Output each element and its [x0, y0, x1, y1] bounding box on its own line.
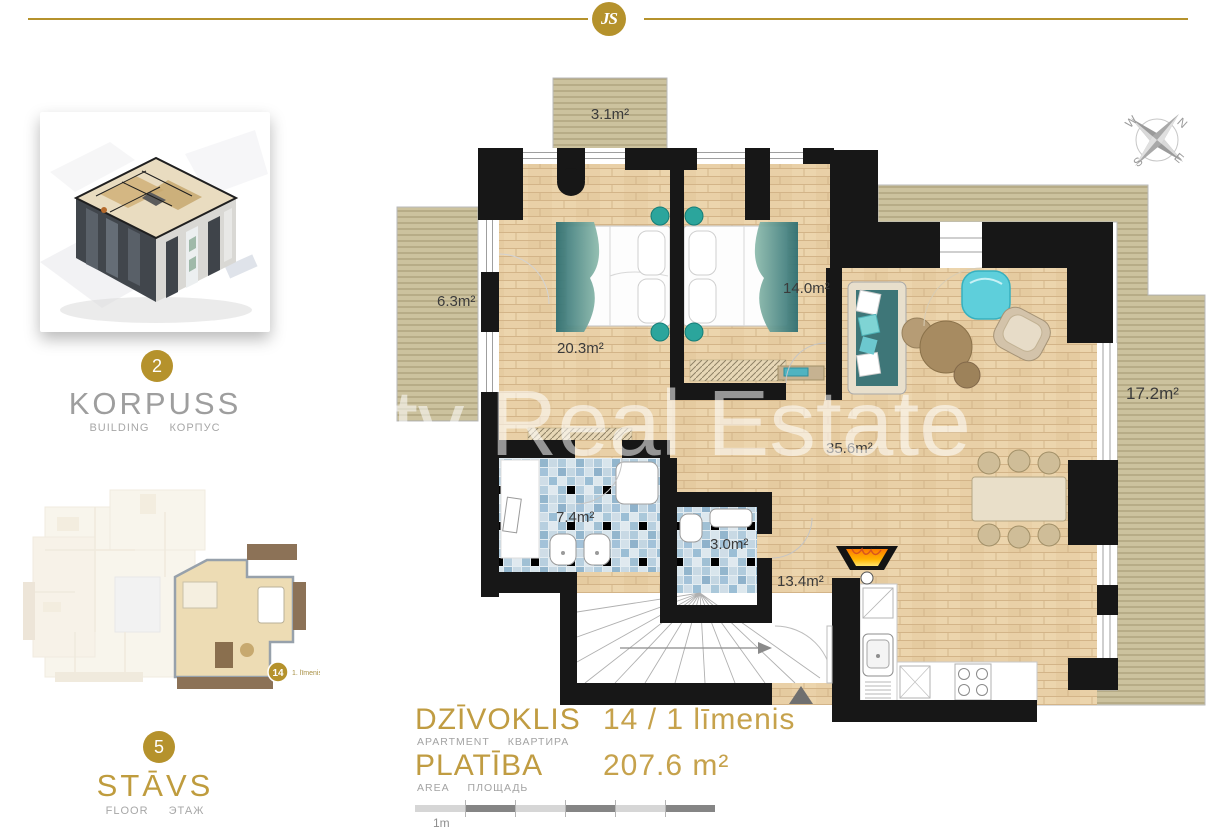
- label-bedroom1: 20.3m²: [557, 340, 604, 357]
- floor-subtitle-ru: ЭТАЖ: [169, 805, 205, 817]
- area-sub-en: AREA: [417, 782, 450, 794]
- wall-door-knob: [557, 168, 585, 196]
- building-subtitle-en: BUILDING: [89, 422, 149, 434]
- bed-2: [684, 222, 798, 332]
- outside-gap: [499, 593, 560, 705]
- building-subtitle-ru: КОРПУС: [170, 422, 221, 434]
- scale-tick: [665, 800, 666, 817]
- floorplan-page: JS: [0, 0, 1216, 837]
- label-bathroom: 7.4m²: [556, 509, 594, 526]
- scale-segment: [415, 805, 465, 812]
- scale-unit-label: 1m: [433, 816, 450, 830]
- dining-set: [972, 450, 1066, 548]
- building-3d-image: [40, 112, 270, 332]
- area-sublabels: AREA ПЛОЩАДЬ: [417, 782, 542, 794]
- area-label: PLATĪBA: [415, 749, 543, 783]
- apartment-sublabels: APARTMENT КВАРТИРА: [417, 736, 583, 748]
- area-sub-ru: ПЛОЩАДЬ: [468, 782, 529, 794]
- minimap-unit-badge: 14: [272, 668, 284, 679]
- header-rule-right: [644, 18, 1188, 20]
- bedroom2-door-gap: [786, 383, 826, 400]
- label-living: 35.6m²: [826, 440, 873, 457]
- scale-tick: [465, 800, 466, 817]
- scale-segment: [665, 805, 715, 812]
- apartment-sub-ru: КВАРТИРА: [508, 736, 570, 748]
- building-subtitle: BUILDING КОРПУС: [20, 422, 290, 434]
- label-balcony-top: 3.1m²: [591, 106, 629, 123]
- floor-title: STĀVS: [20, 768, 290, 804]
- label-balcony-left: 6.3m²: [437, 293, 475, 310]
- scale-tick: [515, 800, 516, 817]
- building-number-badge: 2: [141, 350, 173, 382]
- floor-subtitle: FLOOR ЭТАЖ: [20, 805, 290, 817]
- apartment-sub-en: APARTMENT: [417, 736, 490, 748]
- brand-logo[interactable]: JS: [592, 2, 626, 36]
- scale-tick: [565, 800, 566, 817]
- scale-segment: [615, 805, 665, 812]
- apartment-value: 14 / 1 līmenis: [603, 703, 795, 737]
- scale-segment: [515, 805, 565, 812]
- floor-subtitle-en: FLOOR: [106, 805, 149, 817]
- balcony-left: [397, 207, 478, 421]
- label-hallway: 13.4m²: [777, 573, 824, 590]
- building-thumbnail-card[interactable]: [40, 112, 270, 332]
- bed-1: [556, 222, 670, 332]
- area-value: 207.6 m²: [603, 749, 729, 783]
- apartment-label: DZĪVOKLIS: [415, 703, 581, 737]
- scale-segment: [465, 805, 515, 812]
- floor-minimap[interactable]: 14 1. līmenis: [15, 482, 320, 697]
- label-wc: 3.0m²: [710, 536, 748, 553]
- wardrobe-2: [690, 360, 786, 381]
- minimap-unit-note: 1. līmenis: [292, 670, 320, 677]
- sofa: [848, 282, 906, 394]
- scale-segment: [565, 805, 615, 812]
- floor-number-badge: 5: [143, 731, 175, 763]
- header-rule-left: [28, 18, 588, 20]
- pouf: [962, 271, 1010, 319]
- floorplan-image: 3.1m² 6.3m² 20.3m² 14.0m² 17.2m² 35.6m² …: [390, 50, 1216, 740]
- bedroom1-door-gap: [575, 440, 622, 458]
- label-bedroom2: 14.0m²: [783, 280, 830, 297]
- building-title: KORPUSS: [20, 386, 290, 422]
- tv-bench: [778, 366, 824, 380]
- scale-tick: [615, 800, 616, 817]
- label-terrace: 17.2m²: [1126, 384, 1179, 403]
